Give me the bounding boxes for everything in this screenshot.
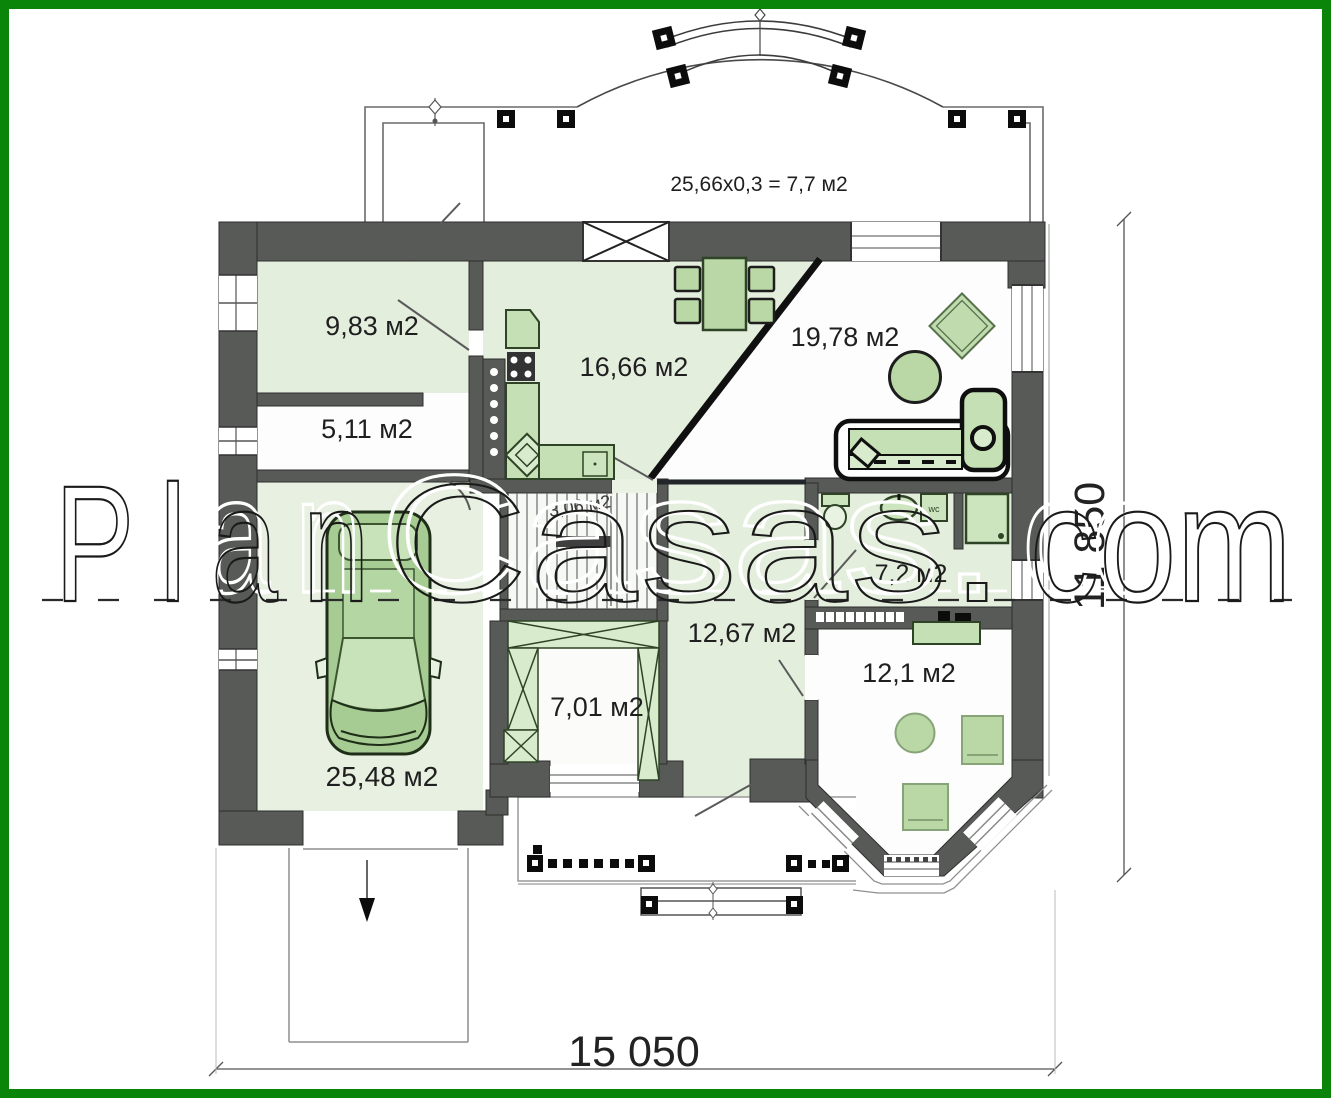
svg-text:com: com (1030, 451, 1292, 637)
svg-text:5,11 м2: 5,11 м2 (321, 414, 413, 444)
svg-text:15 050: 15 050 (568, 1028, 700, 1076)
svg-text:25,66x0,3 = 7,7 м2: 25,66x0,3 = 7,7 м2 (670, 173, 847, 196)
svg-text:7,01 м2: 7,01 м2 (550, 692, 644, 722)
svg-text:Plan: Plan (55, 451, 370, 637)
svg-text:9,83 м2: 9,83 м2 (325, 311, 419, 341)
svg-text:Casas.: Casas. (388, 450, 1004, 637)
svg-text:19,78 м2: 19,78 м2 (791, 322, 900, 352)
svg-text:25,48 м2: 25,48 м2 (326, 761, 439, 792)
svg-text:12,1 м2: 12,1 м2 (862, 658, 956, 688)
svg-text:16,66 м2: 16,66 м2 (580, 352, 689, 382)
